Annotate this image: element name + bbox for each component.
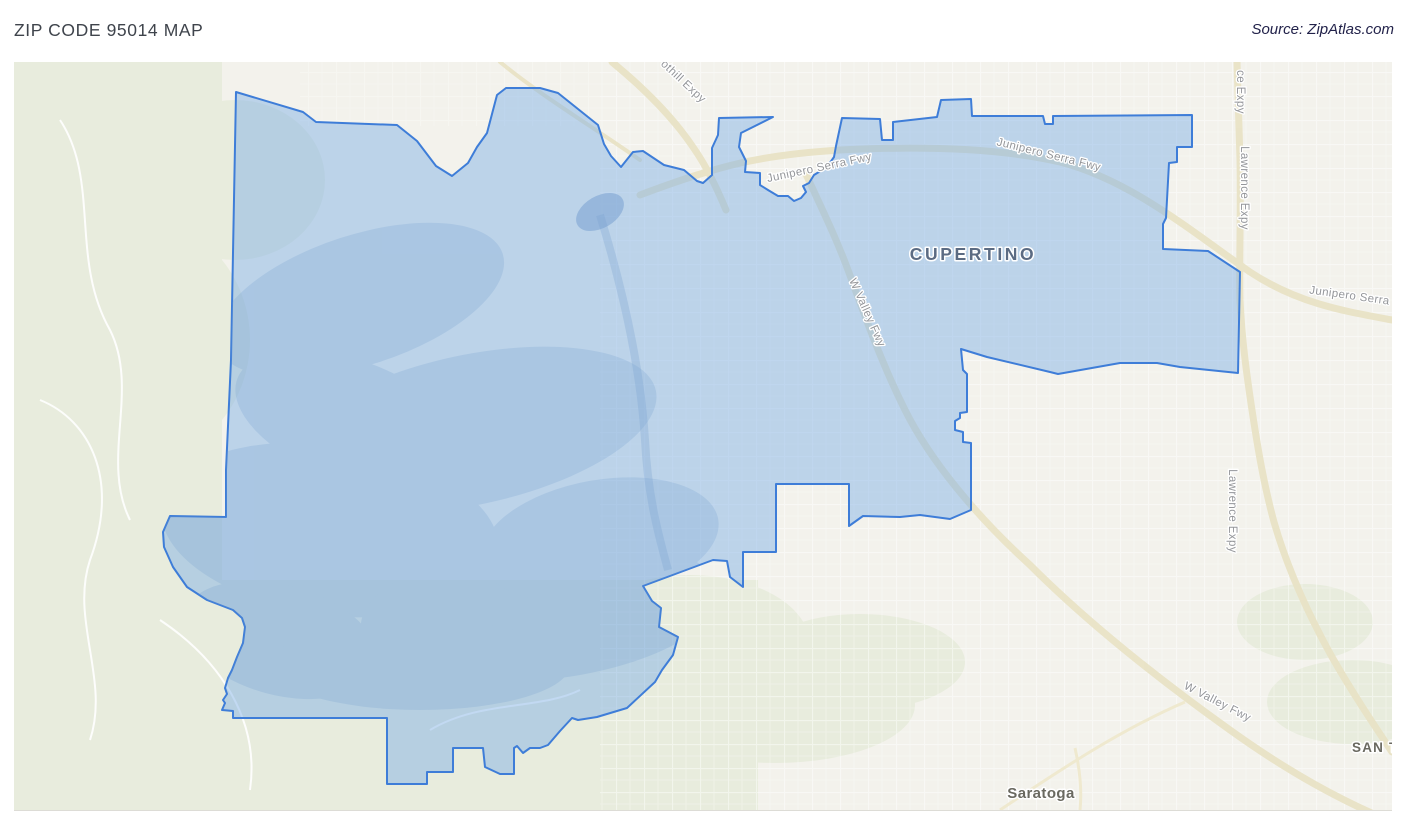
source-credit[interactable]: Source: ZipAtlas.com <box>1251 21 1394 38</box>
page-header: ZIP CODE 95014 MAP Source: ZipAtlas.com <box>0 0 1406 62</box>
town-label-saratoga: Saratoga <box>1007 785 1075 802</box>
page-title: ZIP CODE 95014 MAP <box>14 20 203 41</box>
town-label-san-tomas: SAN TO <box>1352 740 1392 755</box>
road-label-lawrence-expy-lower: Lawrence Expy <box>1226 469 1238 553</box>
map-svg: Junipero Serra FwyJunipero Serra FwyJuni… <box>14 62 1392 810</box>
road-label-lawrence-expy-upper: Lawrence Expy <box>1238 146 1250 230</box>
map-canvas[interactable]: Junipero Serra FwyJunipero Serra FwyJuni… <box>14 62 1392 811</box>
road-label-lawrence-expy-top-cut: ce Expy <box>1234 70 1246 114</box>
city-label-cupertino: CUPERTINO <box>910 244 1036 264</box>
